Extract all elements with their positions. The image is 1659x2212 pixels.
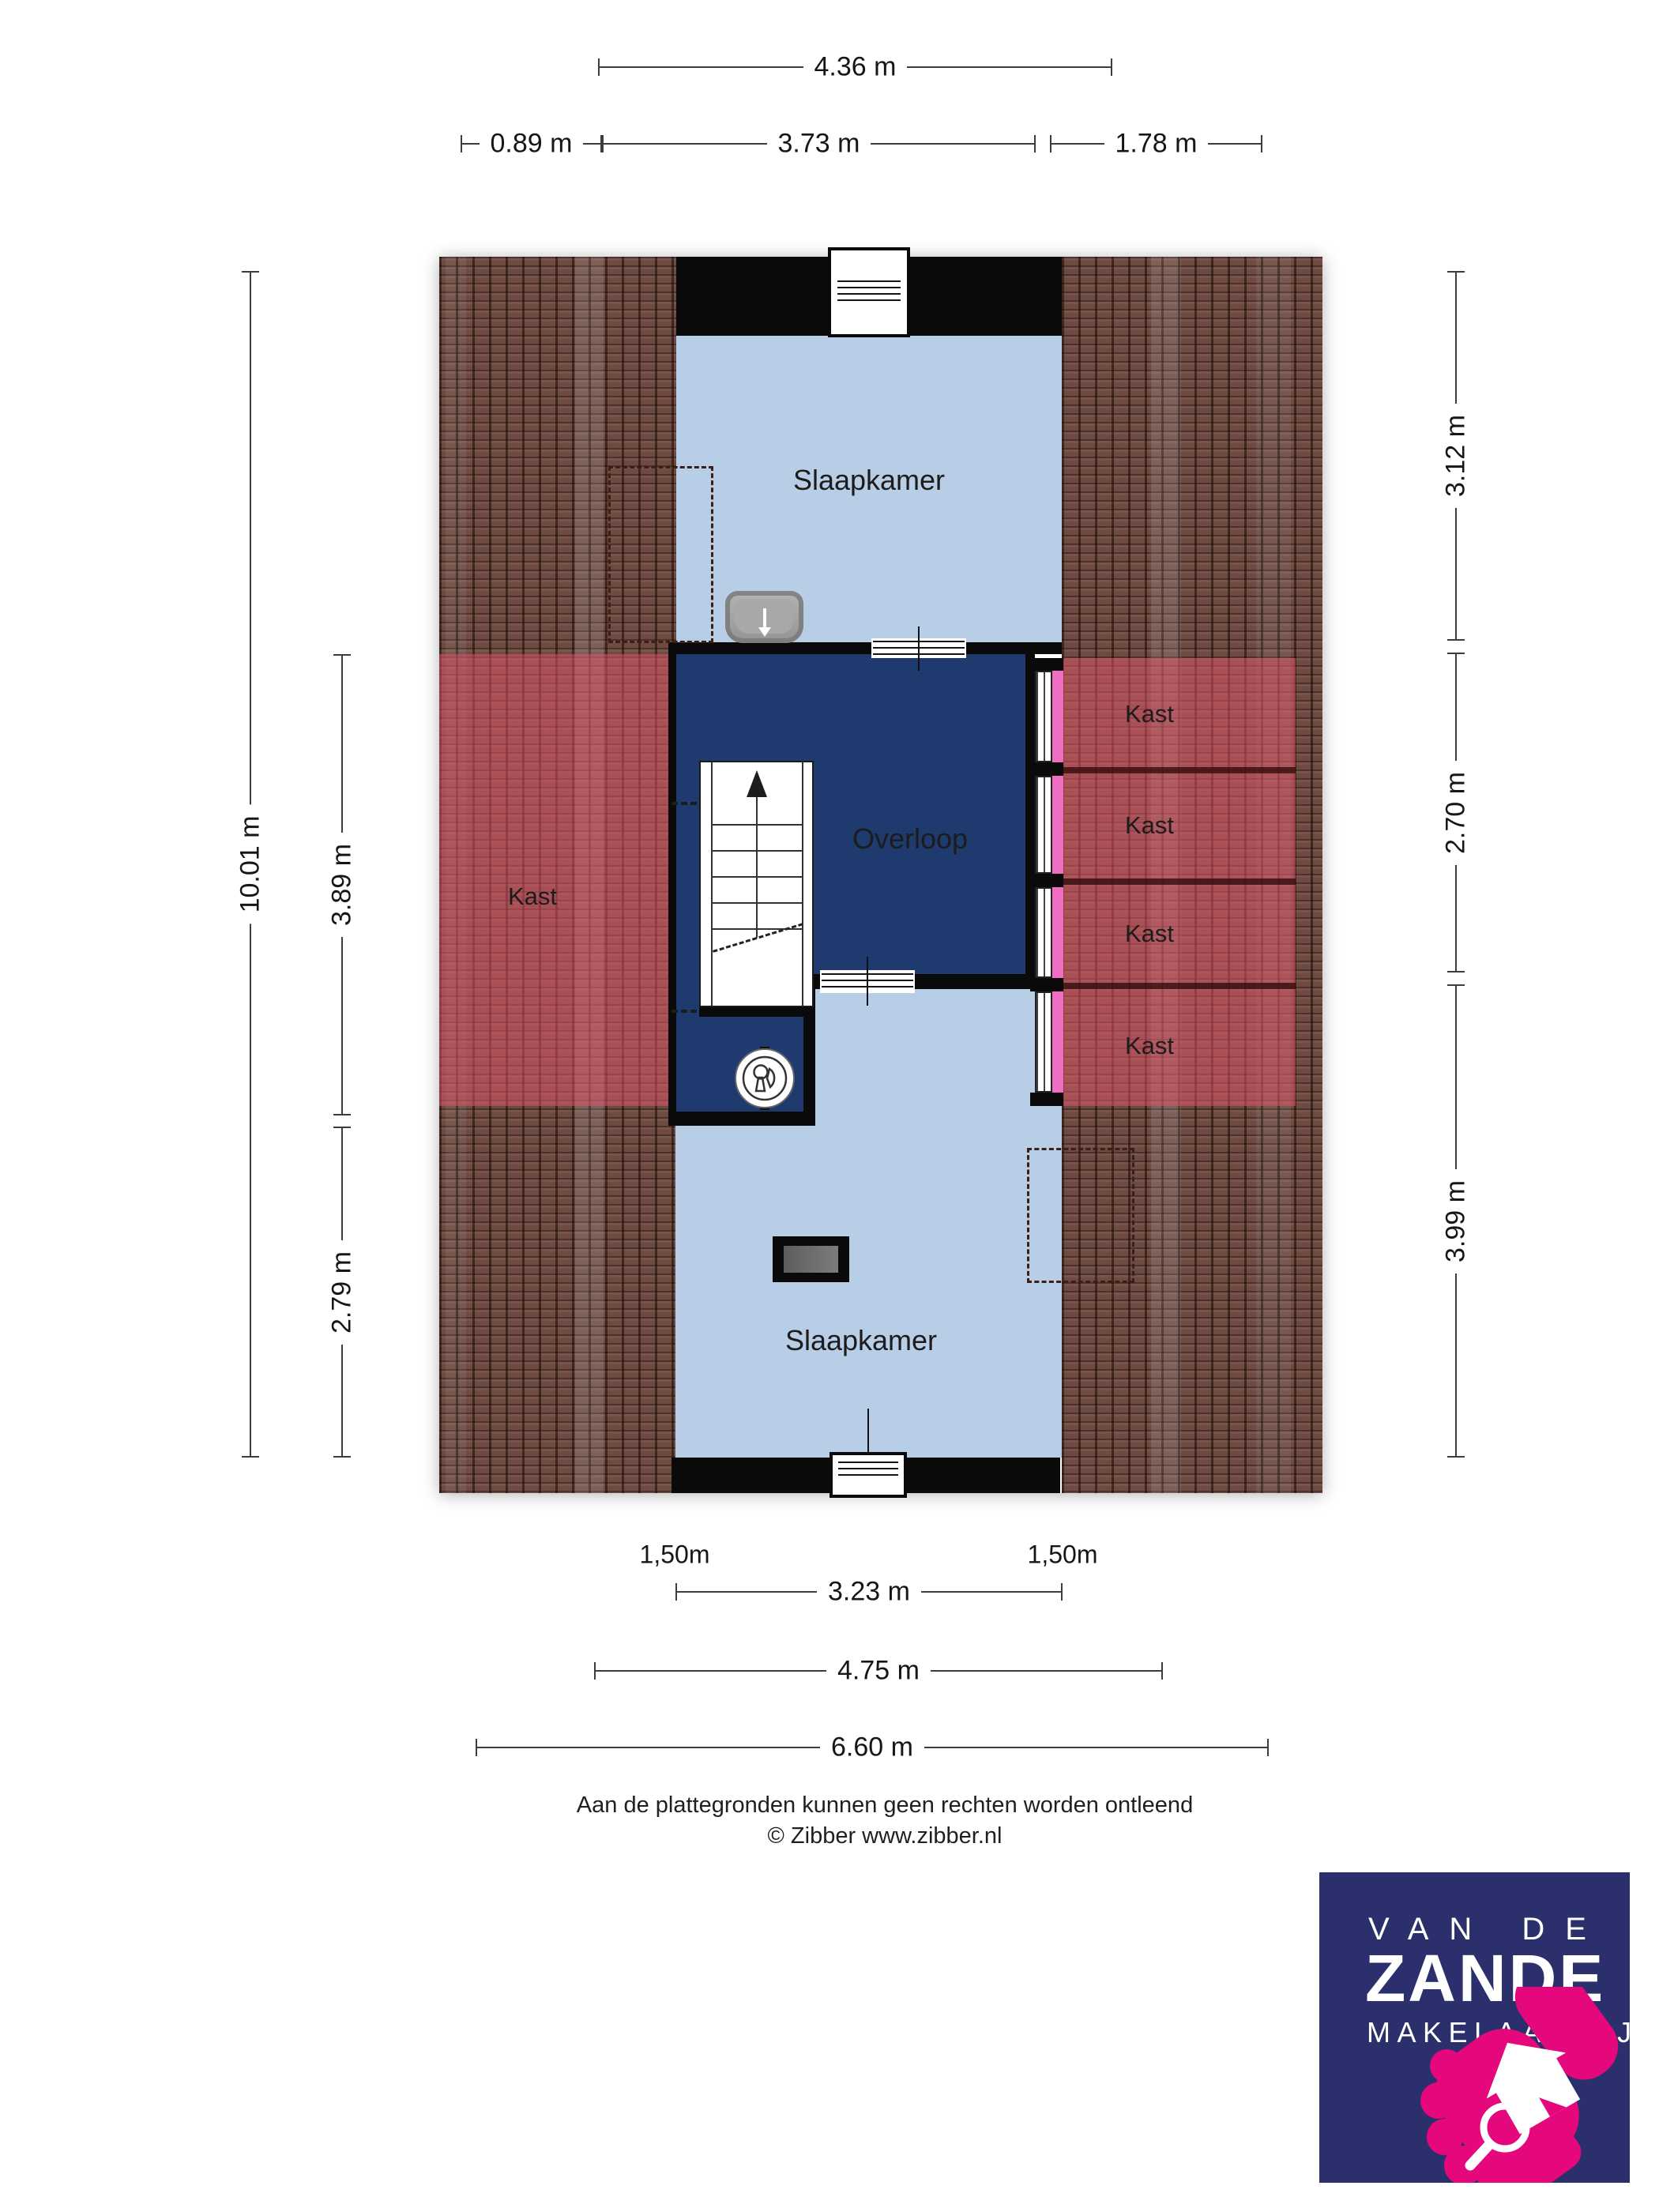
- dimension-label: 2.79 m: [325, 1240, 359, 1345]
- closet-wall-stub: [1030, 658, 1063, 671]
- dimension-label: 4.36 m: [803, 51, 908, 85]
- roof-window-outline-top: [608, 466, 713, 643]
- rug-center: [784, 1246, 838, 1273]
- dimension-label: 10.01 m: [234, 805, 268, 924]
- closet-door-pink: [1052, 671, 1063, 762]
- closet-wall-stub: [1030, 874, 1063, 887]
- passage-center-tick: [867, 957, 868, 1006]
- dimension-right-upper: 3.12 m: [1442, 271, 1470, 641]
- closet-door: [1035, 671, 1052, 762]
- dimension-top-left: 0.89 m: [461, 130, 602, 158]
- closet-door: [1035, 776, 1052, 874]
- dimension-right-middle: 2.70 m: [1442, 653, 1470, 972]
- room-label-bedroom-top: Slaapkamer: [793, 464, 945, 497]
- closet-door-pink: [1052, 991, 1063, 1093]
- dimension-label: 1.78 m: [1104, 127, 1209, 161]
- house-magnifier-icon: [1401, 1987, 1630, 2183]
- passage-center-tick: [918, 626, 920, 671]
- window-glazing: [837, 280, 901, 303]
- room-label-closet-right-4: Kast: [1125, 1032, 1174, 1060]
- dimension-left-lower: 2.79 m: [328, 1127, 356, 1458]
- roof-window-outline-bottom: [1027, 1148, 1134, 1283]
- closet-divider-wall: [1062, 983, 1296, 989]
- window-top: [828, 247, 910, 337]
- closet-divider-wall: [1062, 878, 1296, 885]
- headroom-label-right: 1,50m: [1028, 1540, 1098, 1570]
- room-label-closet-right-3: Kast: [1125, 920, 1174, 948]
- sink-icon: [725, 591, 803, 643]
- floorplan-page: 4.36 m 0.89 m 3.73 m 1.78 m 10.01 m 3.89…: [0, 0, 1659, 2212]
- stairwell-bottom-rim: [699, 1007, 814, 1017]
- floorplan: Slaapkamer Overloop Slaapkamer Kast Kast…: [439, 257, 1322, 1493]
- disclaimer: Aan de plattegronden kunnen geen rechten…: [261, 1790, 1509, 1852]
- bedroom-bottom-floor-upper: [815, 989, 1062, 1126]
- closet-door: [1035, 887, 1052, 978]
- wall-bedroomtop-landing: [668, 642, 1062, 654]
- room-label-landing: Overloop: [852, 822, 968, 856]
- stair-rail-line: [802, 762, 803, 1006]
- headroom-label-left: 1,50m: [640, 1540, 710, 1570]
- wall-landing-left: [668, 654, 676, 1126]
- closet-door-pink: [1052, 887, 1063, 978]
- window-bottom: [829, 1452, 907, 1498]
- room-label-closet-left: Kast: [508, 882, 557, 911]
- closet-wall-stub: [1030, 762, 1063, 776]
- dimension-left-total: 10.01 m: [236, 271, 265, 1458]
- dimension-label: 4.75 m: [826, 1654, 931, 1688]
- dimension-bottom-total: 6.60 m: [476, 1733, 1269, 1762]
- knee-wall-dash: [671, 802, 697, 805]
- agency-logo: VAN DE ZANDE MAKELAARDIJ: [1319, 1872, 1630, 2183]
- dimension-label: 2.70 m: [1439, 761, 1473, 865]
- dimension-label: 3.12 m: [1439, 404, 1473, 508]
- closet-divider-wall: [1062, 767, 1296, 773]
- disclaimer-text: Aan de plattegronden kunnen geen rechten…: [261, 1790, 1509, 1821]
- ventilation-unit-icon: [733, 1047, 796, 1110]
- window-glazing: [838, 1461, 898, 1479]
- closet-wall-stub: [1030, 978, 1063, 991]
- dimension-bottom-middle: 4.75 m: [594, 1657, 1163, 1685]
- window-center-tick: [867, 1409, 869, 1452]
- closet-left-area: [439, 654, 668, 1106]
- dimension-label: 3.73 m: [767, 127, 871, 161]
- dimension-label: 0.89 m: [480, 127, 584, 161]
- dimension-label: 6.60 m: [820, 1731, 924, 1765]
- dimension-bottom-inner: 3.23 m: [675, 1578, 1063, 1606]
- dimension-top-right: 1.78 m: [1050, 130, 1262, 158]
- dimension-label: 3.23 m: [817, 1575, 921, 1609]
- room-label-closet-right-1: Kast: [1125, 700, 1174, 728]
- bedroom-bottom-floor: [675, 1126, 1062, 1458]
- room-label-closet-right-2: Kast: [1125, 811, 1174, 840]
- dimension-label: 3.99 m: [1439, 1169, 1473, 1273]
- wall-landing-right: [1025, 654, 1035, 974]
- closet-door-pink: [1052, 776, 1063, 874]
- rug: [773, 1236, 849, 1282]
- stair-walkline: [756, 797, 758, 938]
- dimension-label: 3.89 m: [325, 833, 359, 937]
- wall-stairpocket-bottom: [668, 1112, 815, 1126]
- stair-direction-arrow-icon: [747, 770, 767, 797]
- closet-door: [1035, 991, 1052, 1093]
- sink-drain-arrow-icon: [763, 608, 766, 629]
- closet-wall-stub: [1030, 1093, 1063, 1106]
- credit-text: © Zibber www.zibber.nl: [261, 1821, 1509, 1852]
- dimension-top-middle: 3.73 m: [602, 130, 1036, 158]
- sink-drain-arrow-head: [758, 627, 771, 637]
- dimension-left-upper: 3.89 m: [328, 654, 356, 1115]
- room-label-bedroom-bottom: Slaapkamer: [785, 1324, 937, 1357]
- knee-wall-dash: [671, 1010, 697, 1013]
- staircase: [699, 761, 814, 1007]
- dimension-top-total: 4.36 m: [598, 53, 1112, 81]
- dimension-right-lower: 3.99 m: [1442, 984, 1470, 1458]
